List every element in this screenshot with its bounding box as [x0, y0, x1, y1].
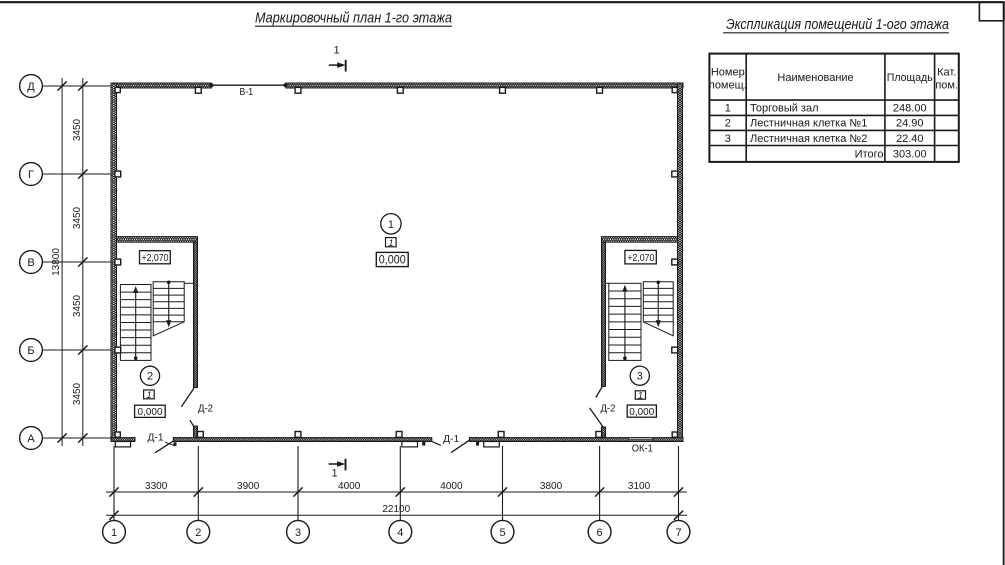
svg-text:4: 4 — [397, 527, 403, 539]
svg-text:1: 1 — [331, 468, 337, 480]
svg-text:3800: 3800 — [540, 481, 563, 492]
svg-text:помещ.: помещ. — [709, 80, 747, 92]
svg-text:22100: 22100 — [382, 504, 410, 515]
svg-text:3450: 3450 — [72, 118, 83, 141]
svg-text:Д-1: Д-1 — [443, 434, 459, 445]
svg-text:Б: Б — [27, 345, 34, 357]
svg-text:3300: 3300 — [145, 481, 168, 492]
svg-text:Итого: Итого — [855, 148, 884, 160]
svg-text:+2,070: +2,070 — [142, 252, 169, 264]
svg-text:В: В — [27, 257, 34, 269]
svg-text:Г: Г — [28, 169, 34, 181]
svg-text:Торговый зал: Торговый зал — [750, 103, 819, 115]
svg-text:3100: 3100 — [628, 481, 651, 492]
svg-text:1: 1 — [638, 390, 643, 401]
svg-text:22.40: 22.40 — [896, 133, 924, 145]
svg-text:Д-1: Д-1 — [148, 432, 164, 443]
svg-text:3450: 3450 — [72, 294, 83, 317]
svg-text:Кат.: Кат. — [937, 67, 956, 79]
svg-text:Маркировочный план 1-го этажа: Маркировочный план 1-го этажа — [255, 10, 452, 27]
svg-text:4000: 4000 — [338, 481, 361, 492]
svg-text:1: 1 — [388, 238, 393, 249]
svg-text:2: 2 — [147, 371, 153, 383]
svg-text:1: 1 — [333, 45, 339, 57]
svg-text:1: 1 — [111, 527, 117, 539]
svg-text:3450: 3450 — [72, 382, 83, 405]
svg-text:Д: Д — [27, 81, 35, 93]
svg-text:303.00: 303.00 — [893, 148, 927, 160]
svg-text:3450: 3450 — [72, 206, 83, 229]
svg-text:5: 5 — [499, 527, 505, 539]
svg-text:24.90: 24.90 — [896, 118, 924, 130]
svg-text:4000: 4000 — [440, 481, 463, 492]
svg-text:А: А — [27, 433, 35, 445]
svg-text:Экспликация помещений 1-ого эт: Экспликация помещений 1-ого этажа — [726, 16, 949, 33]
svg-text:Площадь: Площадь — [887, 72, 933, 84]
svg-text:1: 1 — [388, 219, 394, 231]
svg-text:3900: 3900 — [237, 481, 260, 492]
svg-text:Номер: Номер — [711, 67, 745, 79]
svg-text:Лестничная клетка №2: Лестничная клетка №2 — [750, 133, 867, 145]
svg-text:1: 1 — [146, 390, 151, 401]
svg-text:0,000: 0,000 — [629, 406, 654, 418]
svg-text:13800: 13800 — [51, 248, 62, 276]
svg-text:3: 3 — [295, 527, 301, 539]
svg-text:7: 7 — [675, 527, 681, 539]
svg-text:Наименование: Наименование — [777, 72, 853, 84]
svg-text:6: 6 — [597, 527, 603, 539]
svg-text:1: 1 — [725, 103, 731, 115]
svg-text:Д-2: Д-2 — [198, 403, 213, 414]
svg-text:+2,070: +2,070 — [627, 252, 654, 264]
svg-text:ОК-1: ОК-1 — [632, 443, 653, 454]
svg-text:3: 3 — [725, 133, 731, 145]
svg-text:2: 2 — [195, 527, 201, 539]
svg-text:248.00: 248.00 — [893, 103, 927, 115]
svg-text:3: 3 — [637, 371, 643, 383]
svg-text:0,000: 0,000 — [138, 406, 163, 418]
svg-text:Лестничная клетка №1: Лестничная клетка №1 — [750, 118, 867, 130]
svg-text:В-1: В-1 — [240, 87, 254, 98]
svg-text:Д-2: Д-2 — [601, 404, 616, 415]
svg-text:0,000: 0,000 — [379, 255, 406, 267]
svg-text:2: 2 — [725, 118, 731, 130]
svg-text:пом.: пом. — [935, 80, 958, 92]
